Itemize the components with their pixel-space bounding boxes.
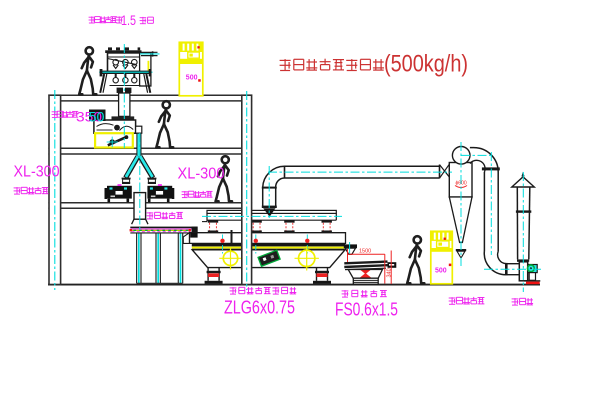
svg-text:500: 500 bbox=[186, 75, 198, 82]
svg-text:1.5: 1.5 bbox=[121, 13, 136, 28]
svg-text:1500: 1500 bbox=[359, 249, 371, 255]
svg-text:340: 340 bbox=[387, 268, 393, 277]
svg-text:(500kg/h): (500kg/h) bbox=[384, 51, 468, 78]
svg-text:FS0.6x1.5: FS0.6x1.5 bbox=[335, 299, 398, 320]
svg-text:ZLG6x0.75: ZLG6x0.75 bbox=[224, 297, 295, 318]
svg-text:XL-300: XL-300 bbox=[178, 166, 225, 183]
svg-text:50: 50 bbox=[89, 109, 105, 125]
svg-text:500: 500 bbox=[435, 268, 447, 275]
svg-text:XL-300: XL-300 bbox=[14, 164, 60, 181]
